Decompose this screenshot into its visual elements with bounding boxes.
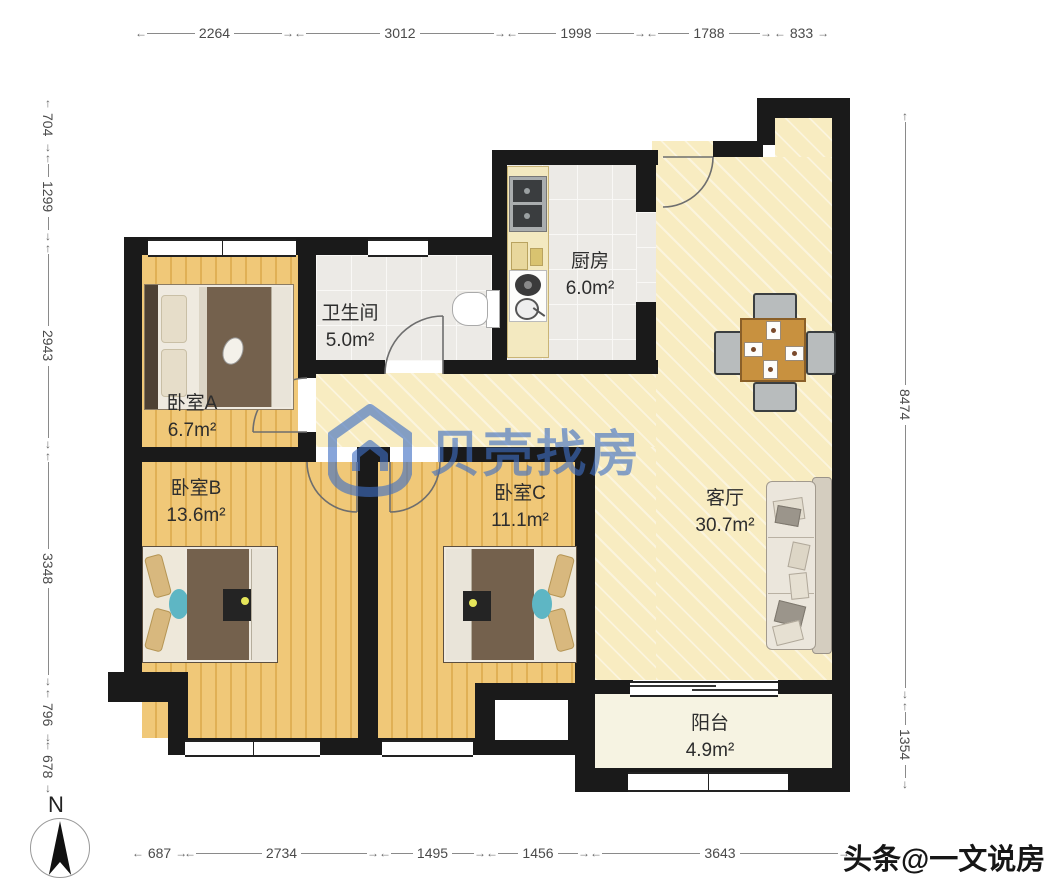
sofa-pillow (789, 572, 810, 600)
kitchen-item (511, 242, 528, 270)
wall-segment (124, 447, 307, 462)
window-mullion (708, 774, 709, 790)
window-mullion (253, 742, 254, 755)
dim-left-3: ↑2943↓ (40, 242, 56, 450)
place-setting (763, 360, 778, 379)
wall-segment (124, 237, 142, 677)
dim-right-2: ↑1354↓ (897, 700, 913, 790)
balcony-sliding-door (630, 681, 778, 697)
sliding-door-leaf (630, 685, 716, 687)
dim-top-5: ←833→ (772, 25, 831, 41)
compass-north-label: N (48, 792, 64, 818)
wall-segment (443, 360, 658, 374)
place-setting (785, 346, 804, 361)
room-area: 6.0m² (535, 275, 645, 302)
bed-pillow (161, 295, 187, 343)
window-mullion (222, 241, 223, 255)
dim-top-4: ←1788→ (646, 25, 772, 41)
dim-bottom-1: ←687→ (135, 845, 184, 861)
bed-footboard (251, 549, 277, 660)
dim-right-1: ↑8474↓ (897, 110, 913, 700)
wall-segment (593, 680, 633, 694)
bed-tray (463, 591, 491, 621)
room-label-balcony: 阳台 4.9m² (645, 710, 775, 764)
bedroom-c-bed (443, 546, 577, 663)
balcony-window (628, 772, 788, 792)
wall-segment (832, 98, 850, 792)
wall-segment (492, 150, 507, 373)
room-label-living-room: 客厅 30.7m² (660, 485, 790, 539)
toilet-tank (486, 290, 500, 328)
wall-segment (357, 447, 390, 462)
room-name: 卫生间 (295, 300, 405, 327)
stove (509, 176, 547, 232)
bedroom-c-window (382, 740, 473, 757)
dim-top-1: ←2264→ (135, 25, 294, 41)
room-label-bedroom-a: 卧室A 6.7m² (132, 390, 252, 444)
dining-chair (806, 331, 836, 375)
place-setting (744, 342, 763, 357)
room-label-bedroom-b: 卧室B 13.6m² (136, 475, 256, 529)
dining-chair (753, 382, 797, 412)
room-area: 13.6m² (136, 502, 256, 529)
stove-burner-dot (524, 188, 530, 194)
room-label-bathroom: 卫生间 5.0m² (295, 300, 405, 354)
wall-segment (778, 680, 832, 694)
bedroom-b-bed (142, 546, 278, 663)
dim-top-3: ←1998→ (506, 25, 646, 41)
room-name: 卧室B (136, 475, 256, 502)
bed-sheet-fold (199, 287, 207, 407)
dim-bottom-2: ←2734→ (184, 845, 379, 861)
wall-segment (358, 462, 378, 738)
toilet (452, 288, 502, 330)
toilet-bowl (452, 292, 488, 326)
bed-tray (223, 589, 253, 621)
floor-plan: 卧室A 6.7m² 卫生间 5.0m² 厨房 6.0m² 客厅 30.7m² 卧… (0, 0, 1044, 882)
bed-round-cushion (169, 589, 189, 619)
credit-text: 头条@一文说房 (843, 836, 1044, 878)
wall-segment (108, 672, 188, 702)
dim-bottom-4: ←1456→ (486, 845, 590, 861)
dim-bottom-3: ←1495→ (379, 845, 486, 861)
wall-segment (636, 150, 656, 212)
stove-burner-dot (524, 213, 530, 219)
room-area: 30.7m² (660, 512, 790, 539)
bathroom-window (368, 239, 428, 257)
bedroom-c-corner-window (495, 700, 568, 740)
dim-left-5: ↑796↓ (40, 687, 56, 743)
room-area: 5.0m² (295, 327, 405, 354)
bed-round-cushion (532, 589, 552, 619)
bedroom-a-window (148, 239, 296, 257)
dim-left-2: ↑1299↓ (40, 152, 56, 242)
entry-threshold (652, 141, 713, 157)
dim-left-1: ↑704↓ (40, 100, 56, 150)
place-setting (766, 321, 781, 340)
bedroom-b-window (185, 740, 320, 757)
dim-left-4: ↑3348↓ (40, 450, 56, 687)
room-area: 11.1m² (455, 507, 585, 534)
bed-tray-light (469, 599, 477, 607)
hallway-floor (316, 373, 656, 447)
pot-dot (524, 281, 532, 289)
room-area: 4.9m² (645, 737, 775, 764)
living-room-floor-topright (775, 118, 832, 157)
room-name: 卧室A (132, 390, 252, 417)
wall-segment (713, 141, 763, 157)
room-label-bedroom-c: 卧室C 11.1m² (455, 480, 585, 534)
living-room-floor-strip (595, 447, 656, 680)
room-name: 卧室C (455, 480, 585, 507)
bed-tray-light (241, 597, 249, 605)
room-name: 厨房 (535, 248, 645, 275)
dim-bottom-5: ←3643→ (590, 845, 850, 861)
room-area: 6.7m² (132, 417, 252, 444)
wall-segment (440, 447, 595, 462)
dim-left-6: ↑678↓ (40, 743, 56, 790)
room-label-kitchen: 厨房 6.0m² (535, 248, 645, 302)
sliding-door-leaf (692, 689, 778, 691)
room-name: 阳台 (645, 710, 775, 737)
dim-top-2: ←3012→ (294, 25, 506, 41)
wall-segment (492, 150, 658, 165)
bed-footboard (271, 287, 291, 407)
room-name: 客厅 (660, 485, 790, 512)
